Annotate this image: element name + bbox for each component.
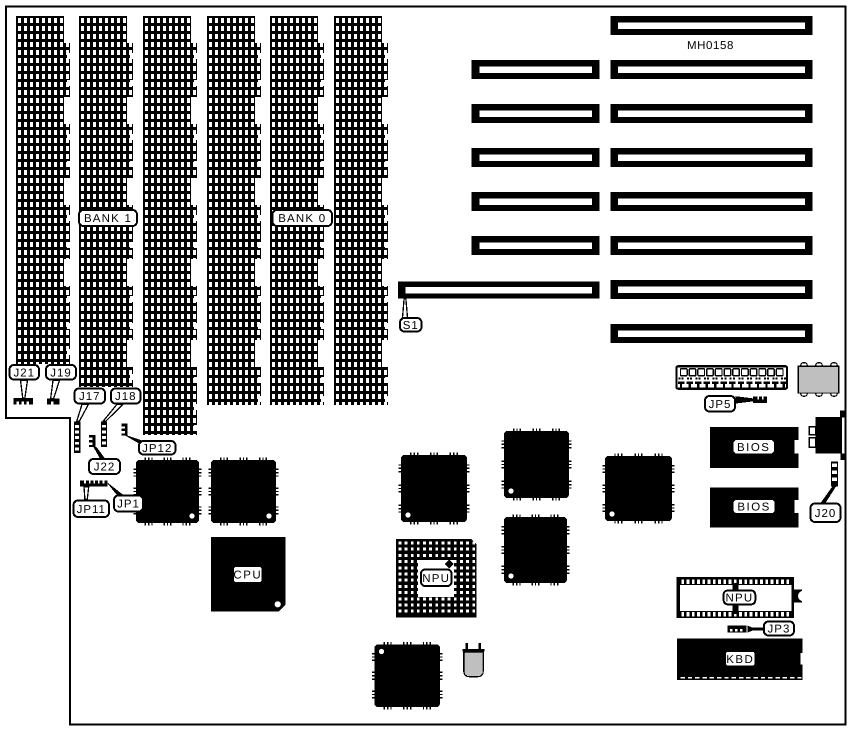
svg-text:S1: S1 xyxy=(403,320,419,332)
svg-text:KBD: KBD xyxy=(726,654,754,666)
svg-text:J21: J21 xyxy=(13,367,35,379)
svg-text:BIOS: BIOS xyxy=(737,502,770,514)
svg-text:BANK 1: BANK 1 xyxy=(84,213,132,225)
svg-text:JP11: JP11 xyxy=(77,504,106,516)
svg-text:J20: J20 xyxy=(815,508,837,520)
svg-text:JP1: JP1 xyxy=(117,499,140,511)
svg-text:J19: J19 xyxy=(50,367,72,379)
svg-text:BIOS: BIOS xyxy=(737,442,770,454)
svg-text:MH0158: MH0158 xyxy=(687,40,734,52)
svg-text:JP5: JP5 xyxy=(709,399,732,411)
svg-text:J17: J17 xyxy=(79,391,101,403)
svg-text:NPU: NPU xyxy=(726,593,754,605)
svg-text:CPU: CPU xyxy=(233,570,262,582)
svg-text:BANK 0: BANK 0 xyxy=(278,213,326,225)
svg-text:JP12: JP12 xyxy=(142,443,172,455)
svg-text:NPU: NPU xyxy=(422,573,450,585)
svg-text:JP3: JP3 xyxy=(768,624,791,636)
svg-text:J18: J18 xyxy=(115,391,137,403)
svg-text:J22: J22 xyxy=(94,462,116,474)
